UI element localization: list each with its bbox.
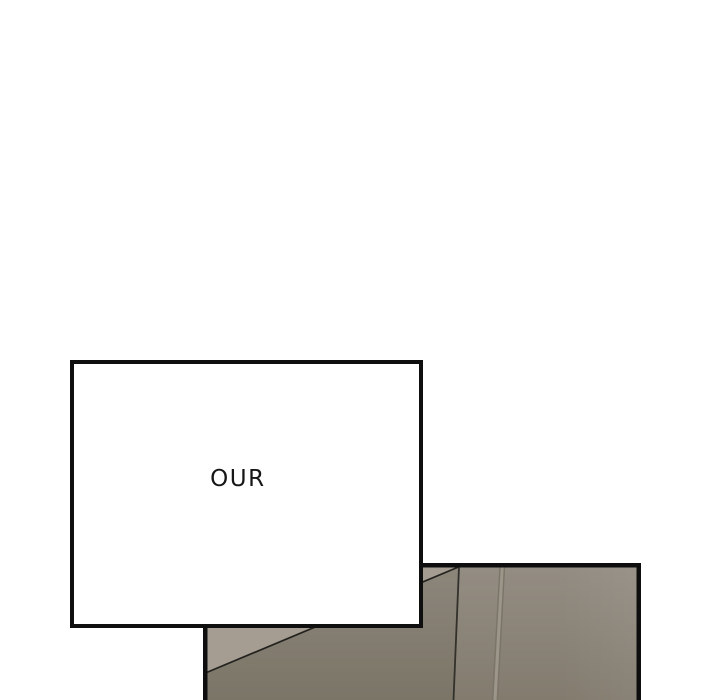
narration-box: OUR [70,360,423,628]
narration-text: OUR [210,466,265,492]
panel-border-right [637,563,642,700]
wall-sheen [463,563,641,700]
page-background: OUR [0,0,720,700]
